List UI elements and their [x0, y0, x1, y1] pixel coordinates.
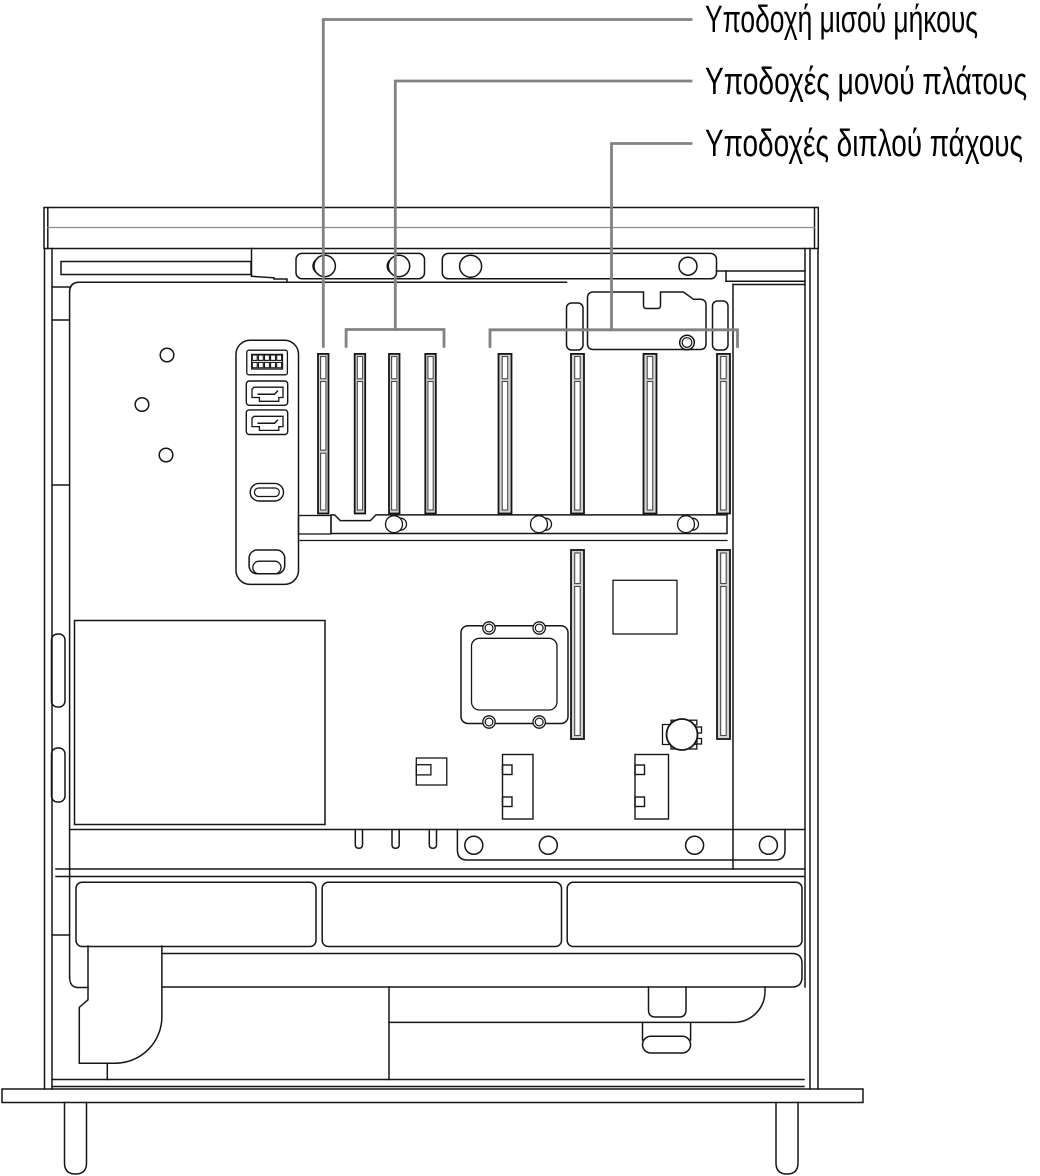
svg-text:Υποδοχές διπλού πάχους: Υποδοχές διπλού πάχους — [705, 123, 1023, 165]
svg-text:Υποδοχή μισού μήκους: Υποδοχή μισού μήκους — [705, 0, 978, 41]
svg-text:Υποδοχές μονού πλάτους: Υποδοχές μονού πλάτους — [705, 61, 1027, 103]
